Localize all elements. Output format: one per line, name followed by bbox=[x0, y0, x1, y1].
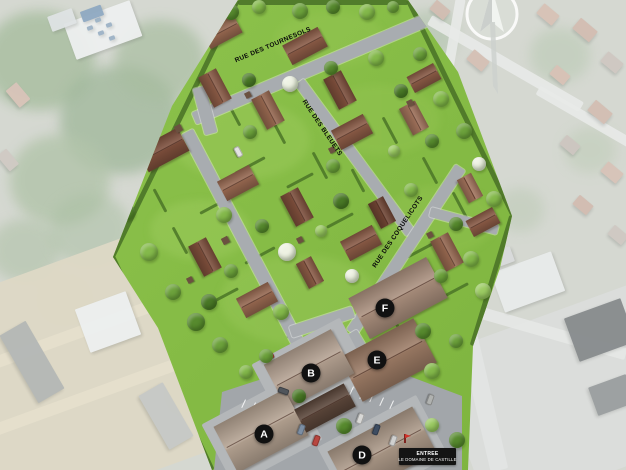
building-marker-E[interactable]: E bbox=[368, 351, 387, 370]
building-marker-B[interactable]: B bbox=[302, 364, 321, 383]
building-marker-F[interactable]: F bbox=[376, 299, 395, 318]
site-plan-map: RUE DES TOURNESOLS RUE DES BLEUETS RUE D… bbox=[0, 0, 626, 470]
street-label-coquelicots: RUE DES COQUELICOTS bbox=[371, 195, 424, 269]
map-overlay: RUE DES TOURNESOLS RUE DES BLEUETS RUE D… bbox=[0, 0, 626, 470]
street-label-tournesols: RUE DES TOURNESOLS bbox=[234, 26, 312, 64]
entrance-line2: LE DOMAINE DE CASTILLE bbox=[398, 457, 456, 462]
north-arrow-icon bbox=[464, 0, 520, 111]
building-marker-D[interactable]: D bbox=[353, 446, 372, 465]
entrance-flag-icon bbox=[404, 434, 406, 443]
building-marker-A[interactable]: A bbox=[255, 425, 274, 444]
street-label-bleuets: RUE DES BLEUETS bbox=[301, 99, 344, 158]
entrance-label: ENTREE LE DOMAINE DE CASTILLE bbox=[399, 448, 456, 465]
